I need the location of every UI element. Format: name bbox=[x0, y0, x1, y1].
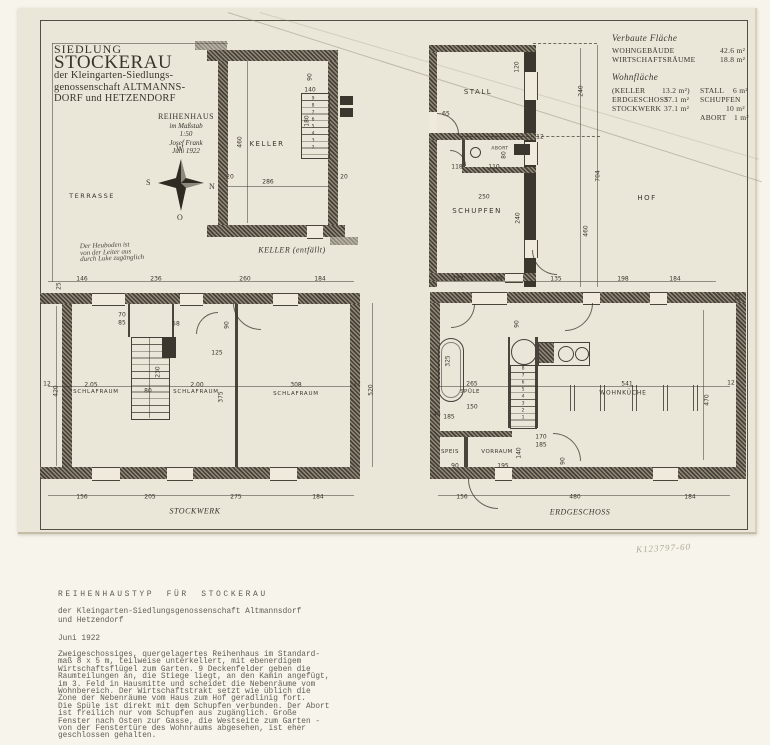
stair-numbers: 3 bbox=[522, 402, 525, 407]
boiler-fixture bbox=[514, 144, 530, 155]
wall bbox=[429, 52, 437, 287]
catalog-subtitle: der Kleingarten-Siedlungsgenossenschaft … bbox=[58, 608, 301, 626]
compass-north: N bbox=[209, 182, 215, 191]
stove-ring bbox=[575, 347, 589, 361]
ceiling-beam-mark bbox=[663, 385, 668, 411]
wf-schupfen-label: SCHUPFEN bbox=[700, 95, 741, 104]
door-opening bbox=[307, 225, 323, 239]
dim-labels: 20 bbox=[226, 174, 234, 181]
label-terrasse: TERRASSE bbox=[69, 192, 115, 200]
dim-labels: 58 bbox=[172, 321, 180, 328]
wall bbox=[430, 467, 746, 479]
wall bbox=[429, 45, 536, 52]
wall bbox=[430, 431, 512, 437]
scanned-plan-sheet: SIEDLUNG STOCKERAU der Kleingarten-Siedl… bbox=[0, 0, 770, 745]
dim-labels: 460 bbox=[583, 225, 590, 236]
scale-value: 1:50 bbox=[150, 130, 222, 139]
dim-labels: 118 bbox=[451, 164, 462, 171]
dim-labels: 90 bbox=[307, 73, 314, 81]
dashed-line bbox=[533, 43, 597, 44]
label-schlafraum-3: SCHLAFRAUM bbox=[273, 391, 319, 397]
stove-ring bbox=[558, 346, 574, 362]
dim-labels: 240 bbox=[515, 212, 522, 223]
wall bbox=[128, 304, 130, 337]
dim-line bbox=[438, 386, 730, 387]
dim-labels: 198 bbox=[617, 276, 628, 283]
stair-numbers: 4 bbox=[522, 395, 525, 400]
dim-labels: 286 bbox=[262, 179, 273, 186]
area-row2-value: 18.8 m² bbox=[720, 55, 745, 64]
dim-labels: 260 bbox=[239, 276, 250, 283]
dim-labels: 236 bbox=[150, 276, 161, 283]
wall bbox=[40, 467, 360, 479]
title-line-3: genossenschaft ALTMANNS- bbox=[54, 82, 234, 94]
window-opening bbox=[524, 72, 538, 100]
dim-labels: 308 bbox=[290, 382, 301, 389]
dim-labels: 420 bbox=[53, 385, 60, 396]
dim-labels: 125 bbox=[211, 350, 222, 357]
wall bbox=[195, 41, 227, 50]
stair-numbers: 4 bbox=[312, 132, 315, 137]
area-row2-label: WIRTSCHAFTSRÄUME bbox=[612, 55, 696, 64]
area-row1-label: WOHNGEBÄUDE bbox=[612, 46, 674, 55]
window-opening bbox=[472, 292, 507, 305]
titlebox-left-line bbox=[52, 43, 53, 282]
dim-labels: 150 bbox=[466, 404, 477, 411]
stair-numbers: 1 bbox=[522, 416, 525, 421]
chimney-block bbox=[340, 108, 353, 117]
dim-labels: 541 bbox=[621, 381, 632, 388]
window-opening bbox=[273, 293, 298, 306]
dim-labels: 146 bbox=[76, 276, 87, 283]
dim-labels: 80 bbox=[501, 151, 508, 159]
chimney-block bbox=[162, 337, 176, 358]
compass-south: S bbox=[146, 178, 150, 187]
dim-labels: 2.05 bbox=[84, 382, 97, 389]
window-opening bbox=[92, 293, 125, 306]
stair-numbers: 3 bbox=[312, 139, 315, 144]
label-stall: STALL bbox=[464, 88, 492, 96]
wf-stall-value: 6 m² bbox=[733, 86, 748, 95]
stair-numbers: 9 bbox=[312, 97, 315, 102]
dim-labels: 230 bbox=[155, 366, 162, 377]
dim-labels: 45 bbox=[433, 411, 441, 418]
dim-labels: 12 bbox=[727, 380, 735, 387]
wall bbox=[330, 237, 358, 245]
dim-labels: 12 bbox=[353, 381, 361, 388]
title-line-2: der Kleingarten-Siedlungs- bbox=[54, 70, 234, 82]
window-opening bbox=[270, 467, 297, 481]
dim-labels: 184 bbox=[669, 276, 680, 283]
dim-labels: 2.00 bbox=[190, 382, 203, 389]
dim-labels: 90 bbox=[514, 320, 521, 328]
wf-stall-label: STALL bbox=[700, 86, 724, 95]
dim-labels: 70 bbox=[118, 312, 126, 319]
dim-labels: 184 bbox=[314, 276, 325, 283]
drawing-date: Juni 1922 bbox=[150, 147, 222, 156]
dim-labels: 265 bbox=[466, 381, 477, 388]
inventory-number: K123797-60 bbox=[636, 542, 691, 555]
wall bbox=[207, 50, 338, 61]
compass-east: O bbox=[177, 213, 183, 222]
label-schlafraum-2: SCHLAFRAUM bbox=[173, 389, 219, 395]
dim-labels: 184 bbox=[312, 494, 323, 501]
area-heading-2: Wohnfläche bbox=[612, 72, 658, 82]
stair-stringer bbox=[149, 337, 150, 418]
dim-labels: 90 bbox=[451, 463, 459, 470]
window-opening bbox=[180, 293, 203, 306]
wf-erdgeschoss-value: 37.1 m² bbox=[664, 95, 689, 104]
dim-labels: 250 bbox=[478, 194, 489, 201]
dim-labels: 90 bbox=[560, 457, 567, 465]
window-opening bbox=[92, 467, 120, 481]
label-schlafraum-1: SCHLAFRAUM bbox=[73, 389, 119, 395]
wall bbox=[736, 303, 746, 467]
stair-winder bbox=[511, 339, 537, 365]
window-opening bbox=[167, 467, 193, 481]
dim-labels: 12 bbox=[43, 381, 51, 388]
dim-labels: 520 bbox=[368, 384, 375, 395]
title-signature-block: REIHENHAUS im Maßstab 1:50 Josef Frank J… bbox=[150, 113, 222, 156]
wf-keller-value: 13.2 m²) bbox=[662, 86, 690, 95]
ceiling-beam-mark bbox=[693, 385, 698, 411]
dim-labels: 185 bbox=[443, 414, 454, 421]
dim-labels: 156 bbox=[76, 494, 87, 501]
door-opening bbox=[429, 112, 437, 133]
dim-labels: 184 bbox=[684, 494, 695, 501]
dim-labels: 480 bbox=[569, 494, 580, 501]
window-opening bbox=[650, 292, 667, 305]
stair-numbers: 7 bbox=[312, 111, 315, 116]
dim-labels: 85 bbox=[118, 320, 126, 327]
handwritten-note: Der Heuboden ist von der Leiter aus durc… bbox=[80, 241, 145, 263]
stair-numbers: 8 bbox=[522, 367, 525, 372]
stair-numbers: 5 bbox=[312, 125, 315, 130]
caption-keller: KELLER (entfällt) bbox=[258, 246, 325, 255]
dim-labels: 25 bbox=[56, 282, 63, 290]
dim-labels: 704 bbox=[595, 170, 602, 181]
dim-labels: 65 bbox=[495, 276, 503, 283]
dim-labels: 460 bbox=[237, 136, 244, 147]
label-speis: SPEIS bbox=[441, 449, 459, 455]
dim-labels: 110 bbox=[488, 164, 499, 171]
stair-numbers: 6 bbox=[522, 381, 525, 386]
wf-erdgeschoss-label: ERDGESCHOSS bbox=[612, 95, 669, 104]
dim-labels: 205 bbox=[144, 494, 155, 501]
dim-labels: 470 bbox=[704, 394, 711, 405]
wall bbox=[464, 437, 468, 467]
label-keller: KELLER bbox=[249, 140, 284, 148]
dim-labels: 170 bbox=[535, 434, 546, 441]
catalog-date: Juni 1922 bbox=[58, 635, 100, 643]
stair-numbers: 6 bbox=[312, 118, 315, 123]
dim-labels: 375 bbox=[218, 391, 225, 402]
sink-trough-inner bbox=[441, 342, 461, 398]
label-wohnkueche: WOHNKÜCHE bbox=[599, 390, 647, 397]
dim-labels: 65 bbox=[442, 111, 450, 118]
label-vorraum: VORRAUM bbox=[481, 449, 512, 455]
compass-west: W bbox=[176, 144, 184, 153]
wf-abort-value: 1 m² bbox=[734, 113, 749, 122]
stair-numbers: 2 bbox=[522, 409, 525, 414]
dim-line bbox=[597, 45, 598, 287]
dim-labels: 120 bbox=[514, 61, 521, 72]
wf-schupfen-value: 10 m² bbox=[726, 104, 745, 113]
dim-labels: 180 bbox=[304, 115, 311, 126]
wf-abort-label: ABORT bbox=[700, 113, 726, 122]
dim-labels: 20 bbox=[340, 174, 348, 181]
dim-labels: 275 bbox=[230, 494, 241, 501]
dim-line bbox=[48, 281, 354, 282]
drawing-type: REIHENHAUS bbox=[150, 113, 222, 122]
dim-line bbox=[48, 495, 354, 496]
label-hof: HOF bbox=[637, 194, 656, 202]
stair-numbers: 7 bbox=[522, 374, 525, 379]
caption-stockwerk: STOCKWERK bbox=[169, 507, 220, 516]
ceiling-beam-mark bbox=[570, 385, 575, 411]
dim-labels: 140 bbox=[516, 447, 523, 458]
dim-line bbox=[580, 48, 581, 287]
stair-numbers: 8 bbox=[312, 104, 315, 109]
wall bbox=[218, 61, 228, 237]
caption-erdgeschoss: ERDGESCHOSS bbox=[550, 508, 611, 517]
stair-numbers: 2 bbox=[312, 146, 315, 151]
wf-stockwerk-value: 37.1 m² bbox=[664, 104, 689, 113]
catalog-description: Zweigeschossiges, quergelagertes Reihenh… bbox=[58, 652, 388, 741]
dim-labels: 137 bbox=[452, 276, 463, 283]
toilet-fixture bbox=[470, 147, 481, 158]
dim-labels: 156 bbox=[456, 494, 467, 501]
dashed-line bbox=[460, 136, 600, 137]
label-schupfen: SCHUPFEN bbox=[452, 207, 502, 215]
wf-keller-label: (KELLER bbox=[612, 86, 645, 95]
dim-labels: 25 bbox=[735, 293, 742, 301]
dim-labels: 140 bbox=[304, 87, 315, 94]
catalog-title: REIHENHAUSTYP FÜR STOCKERAU bbox=[58, 590, 268, 599]
dim-labels: 185 bbox=[535, 442, 546, 449]
dim-line bbox=[228, 186, 328, 187]
dim-labels: 240 bbox=[578, 85, 585, 96]
wf-stockwerk-label: STOCKWERK bbox=[612, 104, 661, 113]
dim-labels: 135 bbox=[550, 276, 561, 283]
dim-labels: 195 bbox=[497, 463, 508, 470]
dim-labels: 12 bbox=[536, 134, 544, 141]
stair-numbers: 5 bbox=[522, 388, 525, 393]
label-spuele: SPÜLE bbox=[460, 389, 480, 395]
dim-labels: 80 bbox=[144, 388, 152, 395]
window-opening bbox=[653, 467, 678, 481]
scale-caption: im Maßstab bbox=[150, 122, 222, 131]
dim-line bbox=[703, 310, 704, 460]
dim-line bbox=[247, 61, 248, 223]
area-row1-value: 42.6 m² bbox=[720, 46, 745, 55]
chimney-block bbox=[340, 96, 353, 105]
dim-labels: 90 bbox=[224, 321, 231, 329]
wall bbox=[207, 225, 345, 237]
area-heading-1: Verbaute Fläche bbox=[612, 33, 677, 43]
architect-name: Josef Frank bbox=[150, 139, 222, 148]
title-line-4: DORF und HETZENDORF bbox=[54, 93, 234, 105]
compass-star-icon bbox=[157, 157, 205, 213]
stove-firebox bbox=[539, 343, 554, 363]
dim-labels: 325 bbox=[445, 355, 452, 366]
